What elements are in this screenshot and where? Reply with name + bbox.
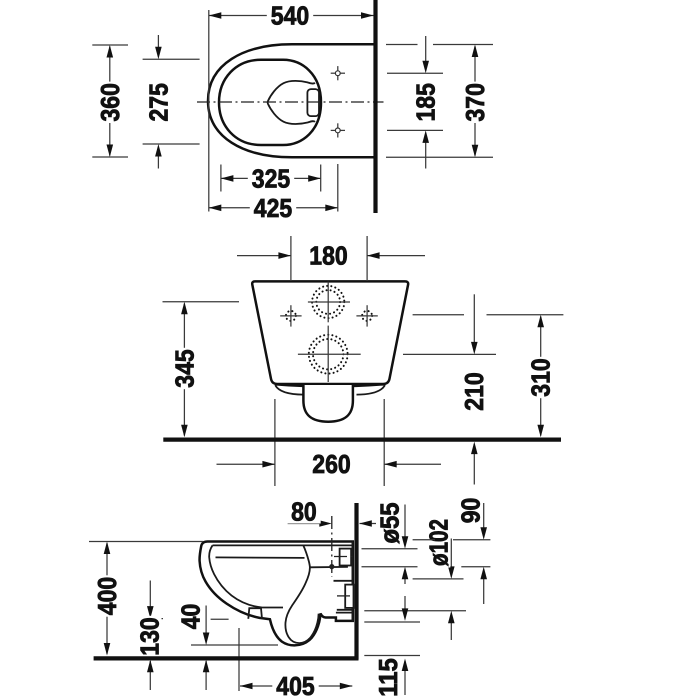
svg-text:400: 400: [92, 577, 122, 615]
svg-text:275: 275: [143, 83, 173, 121]
svg-text:260: 260: [312, 449, 350, 479]
svg-text:130: 130: [135, 617, 165, 655]
svg-text:360: 360: [95, 83, 125, 121]
svg-text:90: 90: [456, 498, 486, 524]
svg-text:370: 370: [460, 83, 490, 121]
svg-text:ø102: ø102: [423, 519, 453, 566]
svg-text:325: 325: [252, 163, 290, 193]
svg-text:40: 40: [176, 604, 206, 630]
svg-text:540: 540: [271, 1, 309, 31]
svg-text:425: 425: [254, 193, 292, 223]
svg-text:80: 80: [291, 497, 317, 527]
svg-text:405: 405: [276, 671, 314, 700]
svg-text:310: 310: [526, 358, 556, 396]
svg-text:115: 115: [373, 658, 403, 696]
svg-text:180: 180: [309, 241, 347, 271]
svg-text:345: 345: [169, 349, 199, 387]
svg-text:210: 210: [459, 372, 489, 410]
svg-text:185: 185: [411, 83, 441, 121]
svg-text:ø55: ø55: [374, 503, 404, 544]
